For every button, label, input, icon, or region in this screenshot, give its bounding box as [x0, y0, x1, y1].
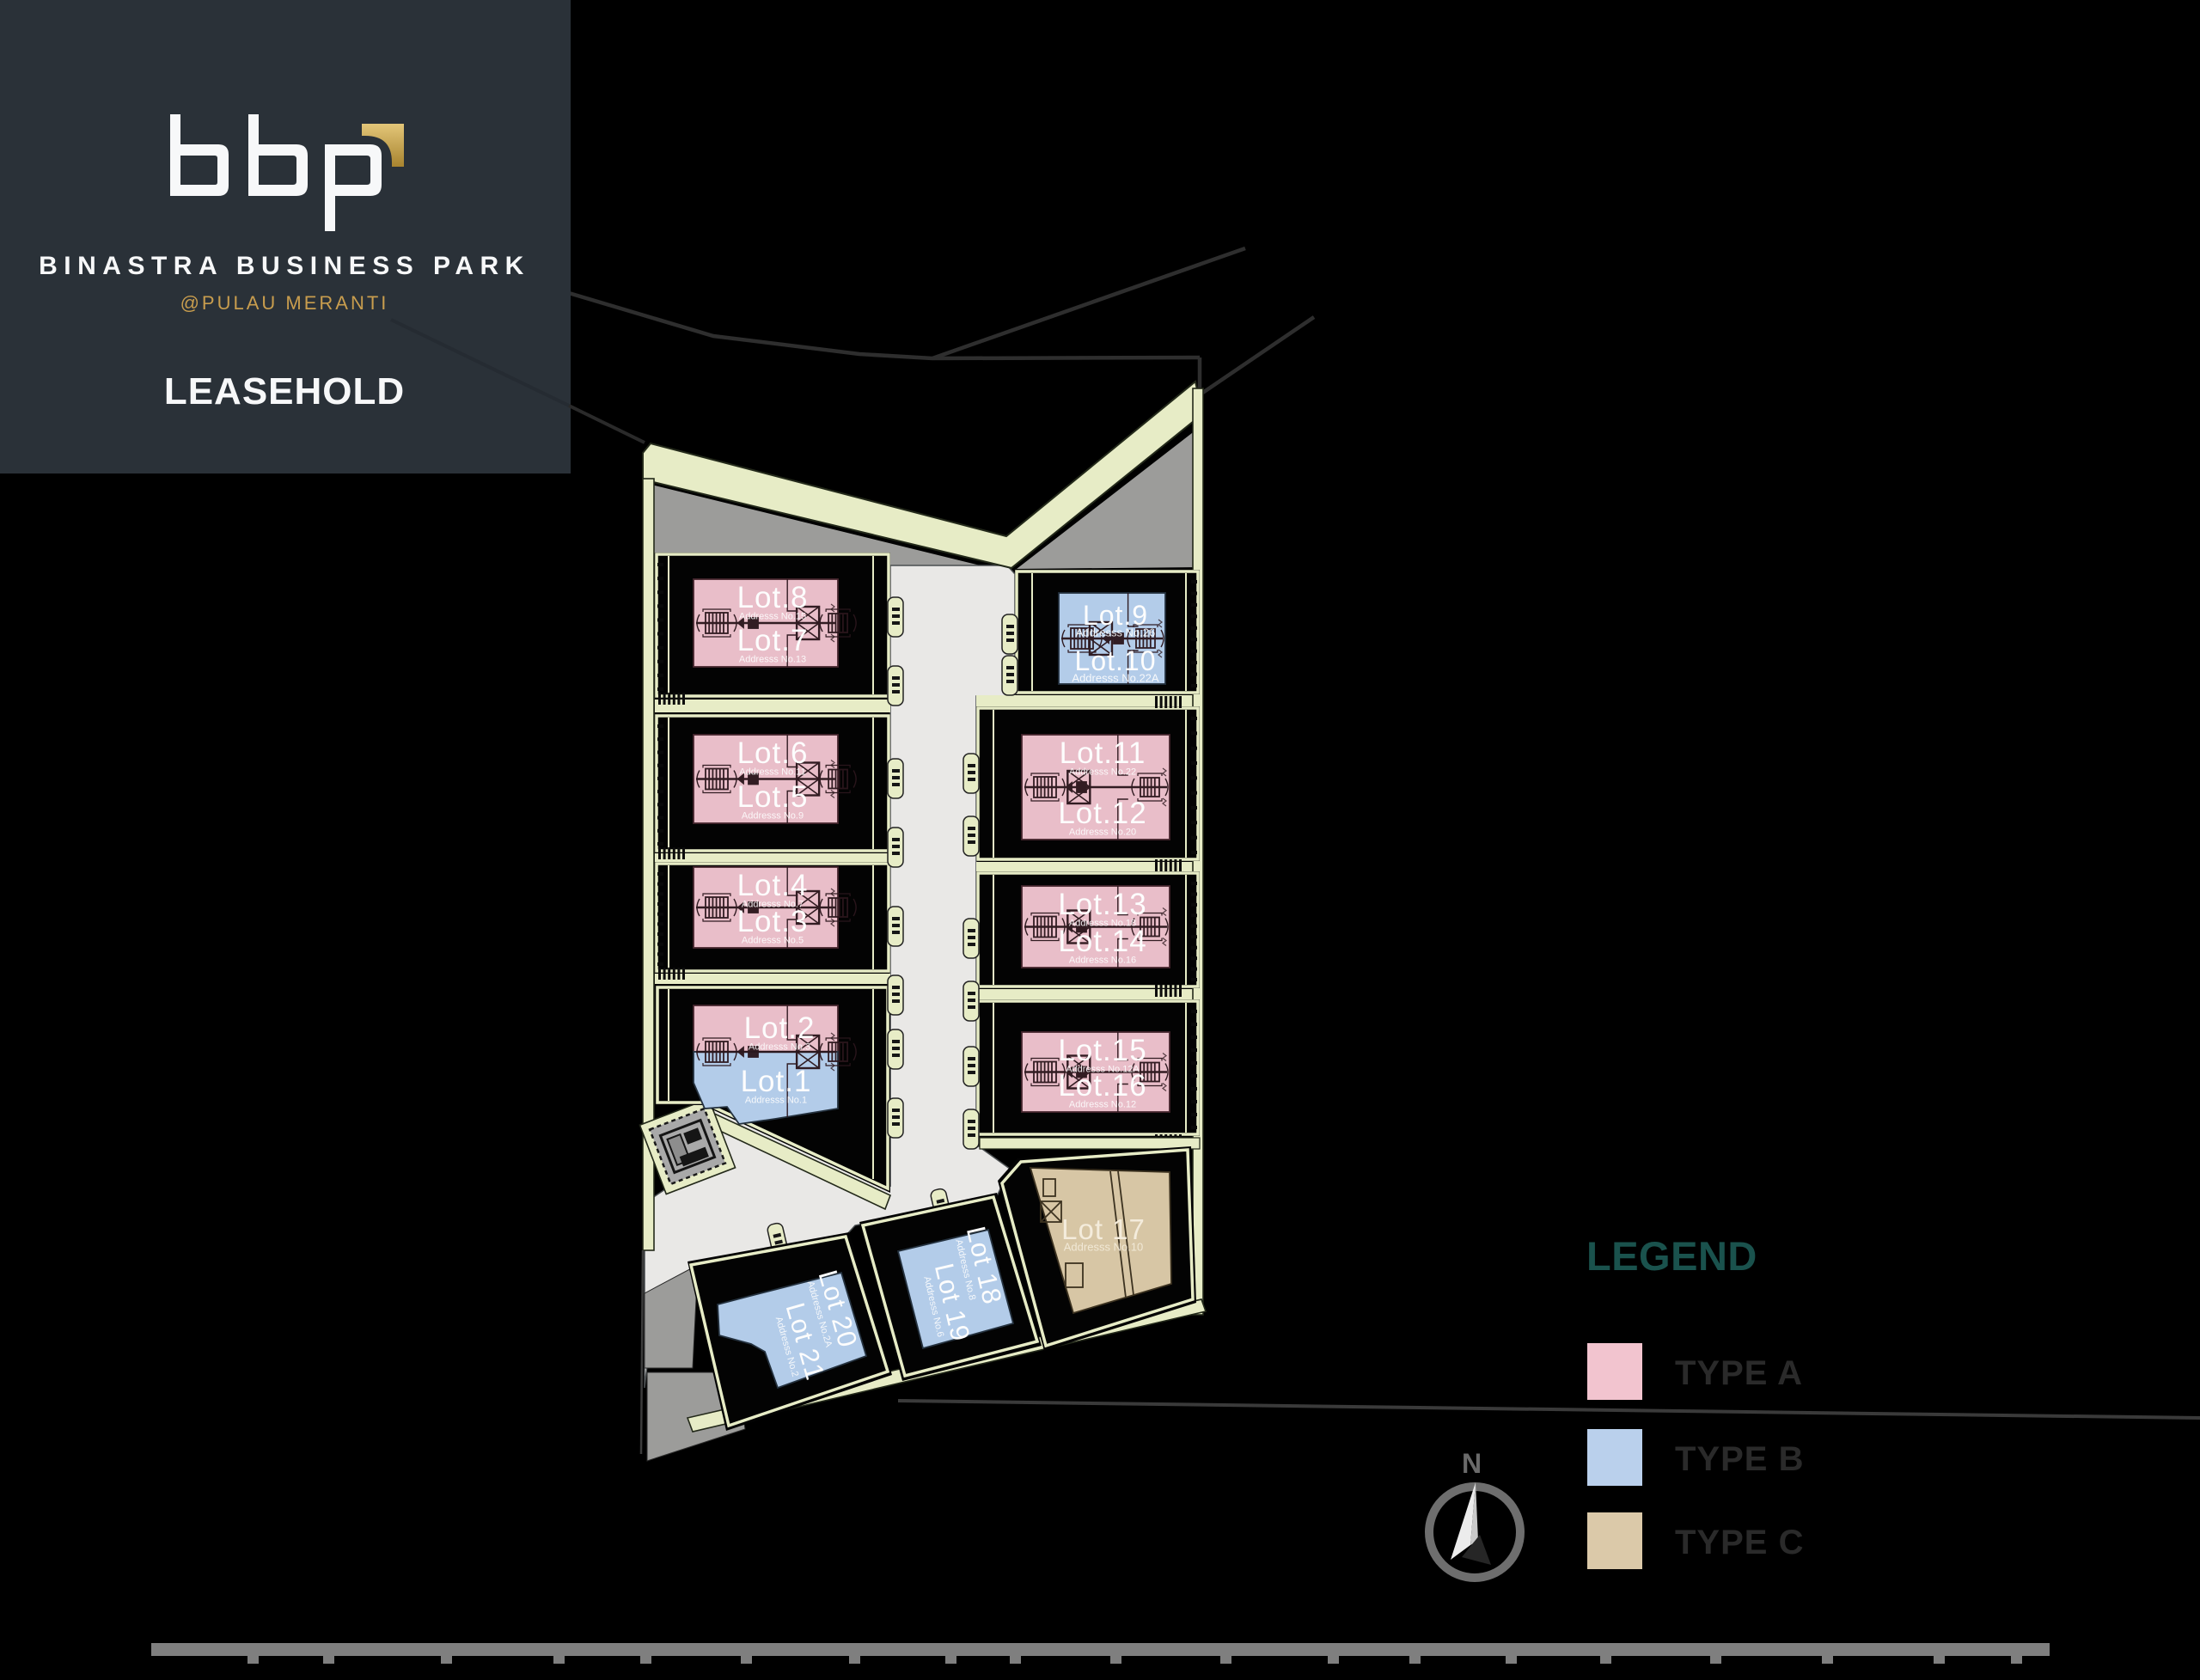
svg-text:Lot.15: Lot.15 [1058, 1034, 1146, 1067]
svg-text:Lot.6: Lot.6 [737, 736, 809, 770]
svg-text:Lot.2: Lot.2 [744, 1011, 816, 1045]
svg-text:Lot.1: Lot.1 [741, 1065, 812, 1098]
svg-text:Lot.16: Lot.16 [1058, 1069, 1146, 1103]
svg-text:Lot.11: Lot.11 [1060, 736, 1146, 770]
svg-text:Addresss No.22: Addresss No.22 [1069, 767, 1136, 778]
svg-text:Addresss No.10: Addresss No.10 [1064, 1241, 1144, 1254]
svg-text:Lot.3: Lot.3 [737, 905, 809, 938]
svg-text:Addresss No.3: Addresss No.3 [749, 1042, 810, 1053]
svg-text:Addresss No.1: Addresss No.1 [745, 1096, 807, 1106]
svg-text:@PULAU MERANTI: @PULAU MERANTI [180, 292, 389, 314]
svg-text:Lot.5: Lot.5 [737, 780, 809, 814]
svg-text:Lot.14: Lot.14 [1058, 925, 1146, 958]
svg-text:Addresss No.5: Addresss No.5 [742, 936, 804, 946]
svg-text:Addresss No.22A: Addresss No.22A [1072, 672, 1158, 685]
svg-text:Addresss No.15: Addresss No.15 [739, 612, 806, 622]
svg-text:Addresss No.26: Addresss No.26 [1076, 626, 1156, 639]
svg-text:LEASEHOLD: LEASEHOLD [164, 370, 405, 412]
svg-text:Addresss No.12: Addresss No.12 [1069, 1100, 1136, 1110]
svg-text:Lot.13: Lot.13 [1058, 888, 1146, 921]
svg-text:Addresss No.9: Addresss No.9 [742, 811, 804, 822]
svg-text:TYPE B: TYPE B [1675, 1440, 1804, 1478]
svg-text:TYPE C: TYPE C [1675, 1524, 1804, 1561]
svg-text:N: N [1462, 1448, 1482, 1479]
svg-text:Lot.12: Lot.12 [1058, 797, 1146, 830]
svg-text:Addresss No.13: Addresss No.13 [739, 655, 806, 665]
svg-text:Addresss No.11: Addresss No.11 [739, 767, 805, 778]
svg-text:Addresss No.16: Addresss No.16 [1069, 956, 1136, 966]
svg-text:Lot.7: Lot.7 [737, 624, 809, 657]
svg-text:Lot.4: Lot.4 [737, 869, 809, 902]
svg-text:TYPE A: TYPE A [1675, 1354, 1803, 1392]
svg-text:BINASTRA BUSINESS PARK: BINASTRA BUSINESS PARK [39, 252, 530, 280]
svg-text:Lot.8: Lot.8 [737, 581, 809, 614]
svg-text:Addresss No.20: Addresss No.20 [1069, 828, 1136, 838]
svg-text:LEGEND: LEGEND [1586, 1233, 1757, 1279]
